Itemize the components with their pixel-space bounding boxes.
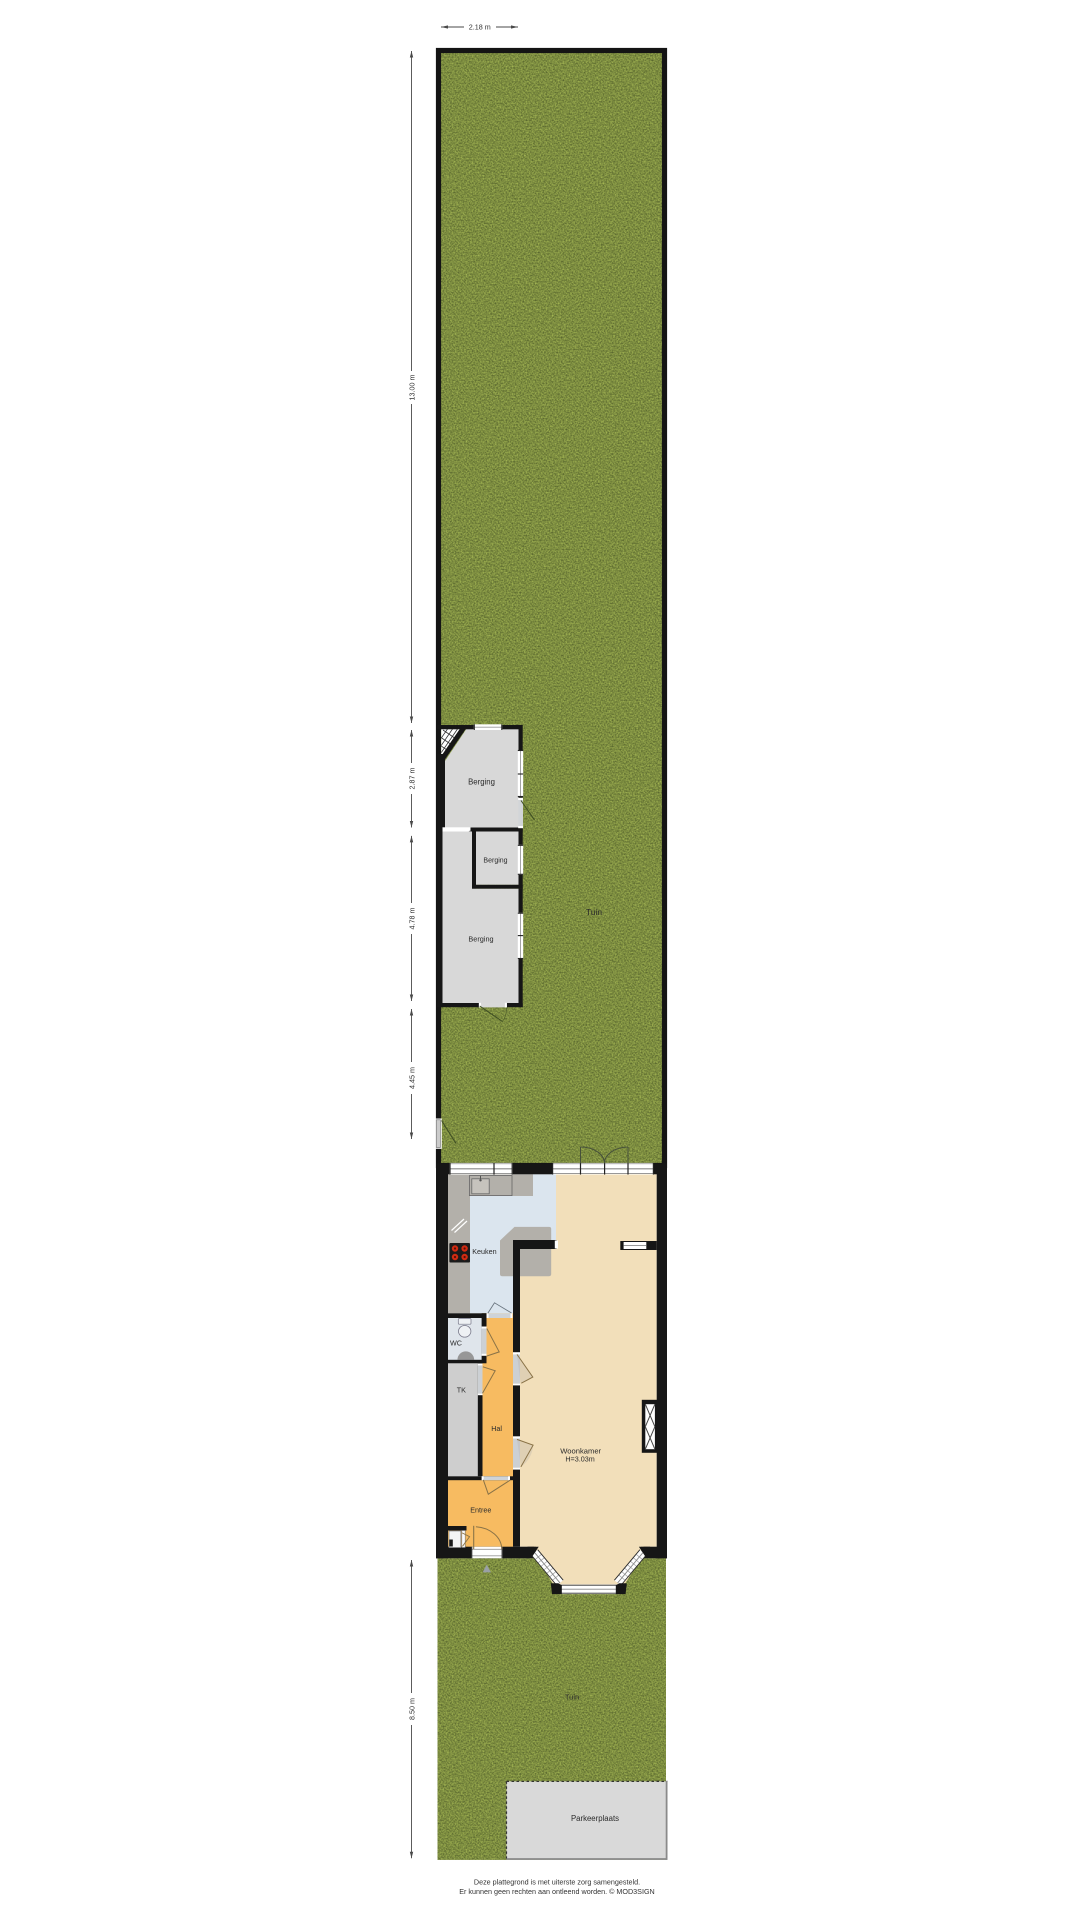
svg-text:WC: WC	[450, 1338, 462, 1347]
svg-text:Parkeerplaats: Parkeerplaats	[571, 1814, 619, 1823]
svg-text:Tuin: Tuin	[586, 907, 602, 917]
svg-text:Berging: Berging	[468, 934, 493, 943]
svg-text:Hal: Hal	[491, 1424, 502, 1433]
svg-text:Berging: Berging	[468, 778, 495, 787]
svg-text:4.78 m: 4.78 m	[408, 908, 417, 930]
svg-text:8.50 m: 8.50 m	[408, 1698, 417, 1720]
svg-text:Deze plattegrond is met uiters: Deze plattegrond is met uiterste zorg sa…	[474, 1878, 640, 1887]
svg-text:TK: TK	[457, 1385, 466, 1394]
svg-text:Berging: Berging	[483, 857, 507, 864]
svg-text:H=3.03m: H=3.03m	[565, 1454, 594, 1463]
svg-text:Tuin: Tuin	[565, 1692, 579, 1701]
svg-text:2.18 m: 2.18 m	[469, 23, 491, 32]
svg-text:Keuken: Keuken	[472, 1247, 496, 1256]
svg-text:13.00 m: 13.00 m	[408, 375, 417, 401]
svg-text:Entree: Entree	[470, 1505, 491, 1514]
svg-text:Er kunnen geen rechten aan ont: Er kunnen geen rechten aan ontleend word…	[459, 1887, 654, 1896]
svg-text:4.45 m: 4.45 m	[408, 1067, 417, 1089]
svg-text:2.87 m: 2.87 m	[408, 768, 417, 790]
